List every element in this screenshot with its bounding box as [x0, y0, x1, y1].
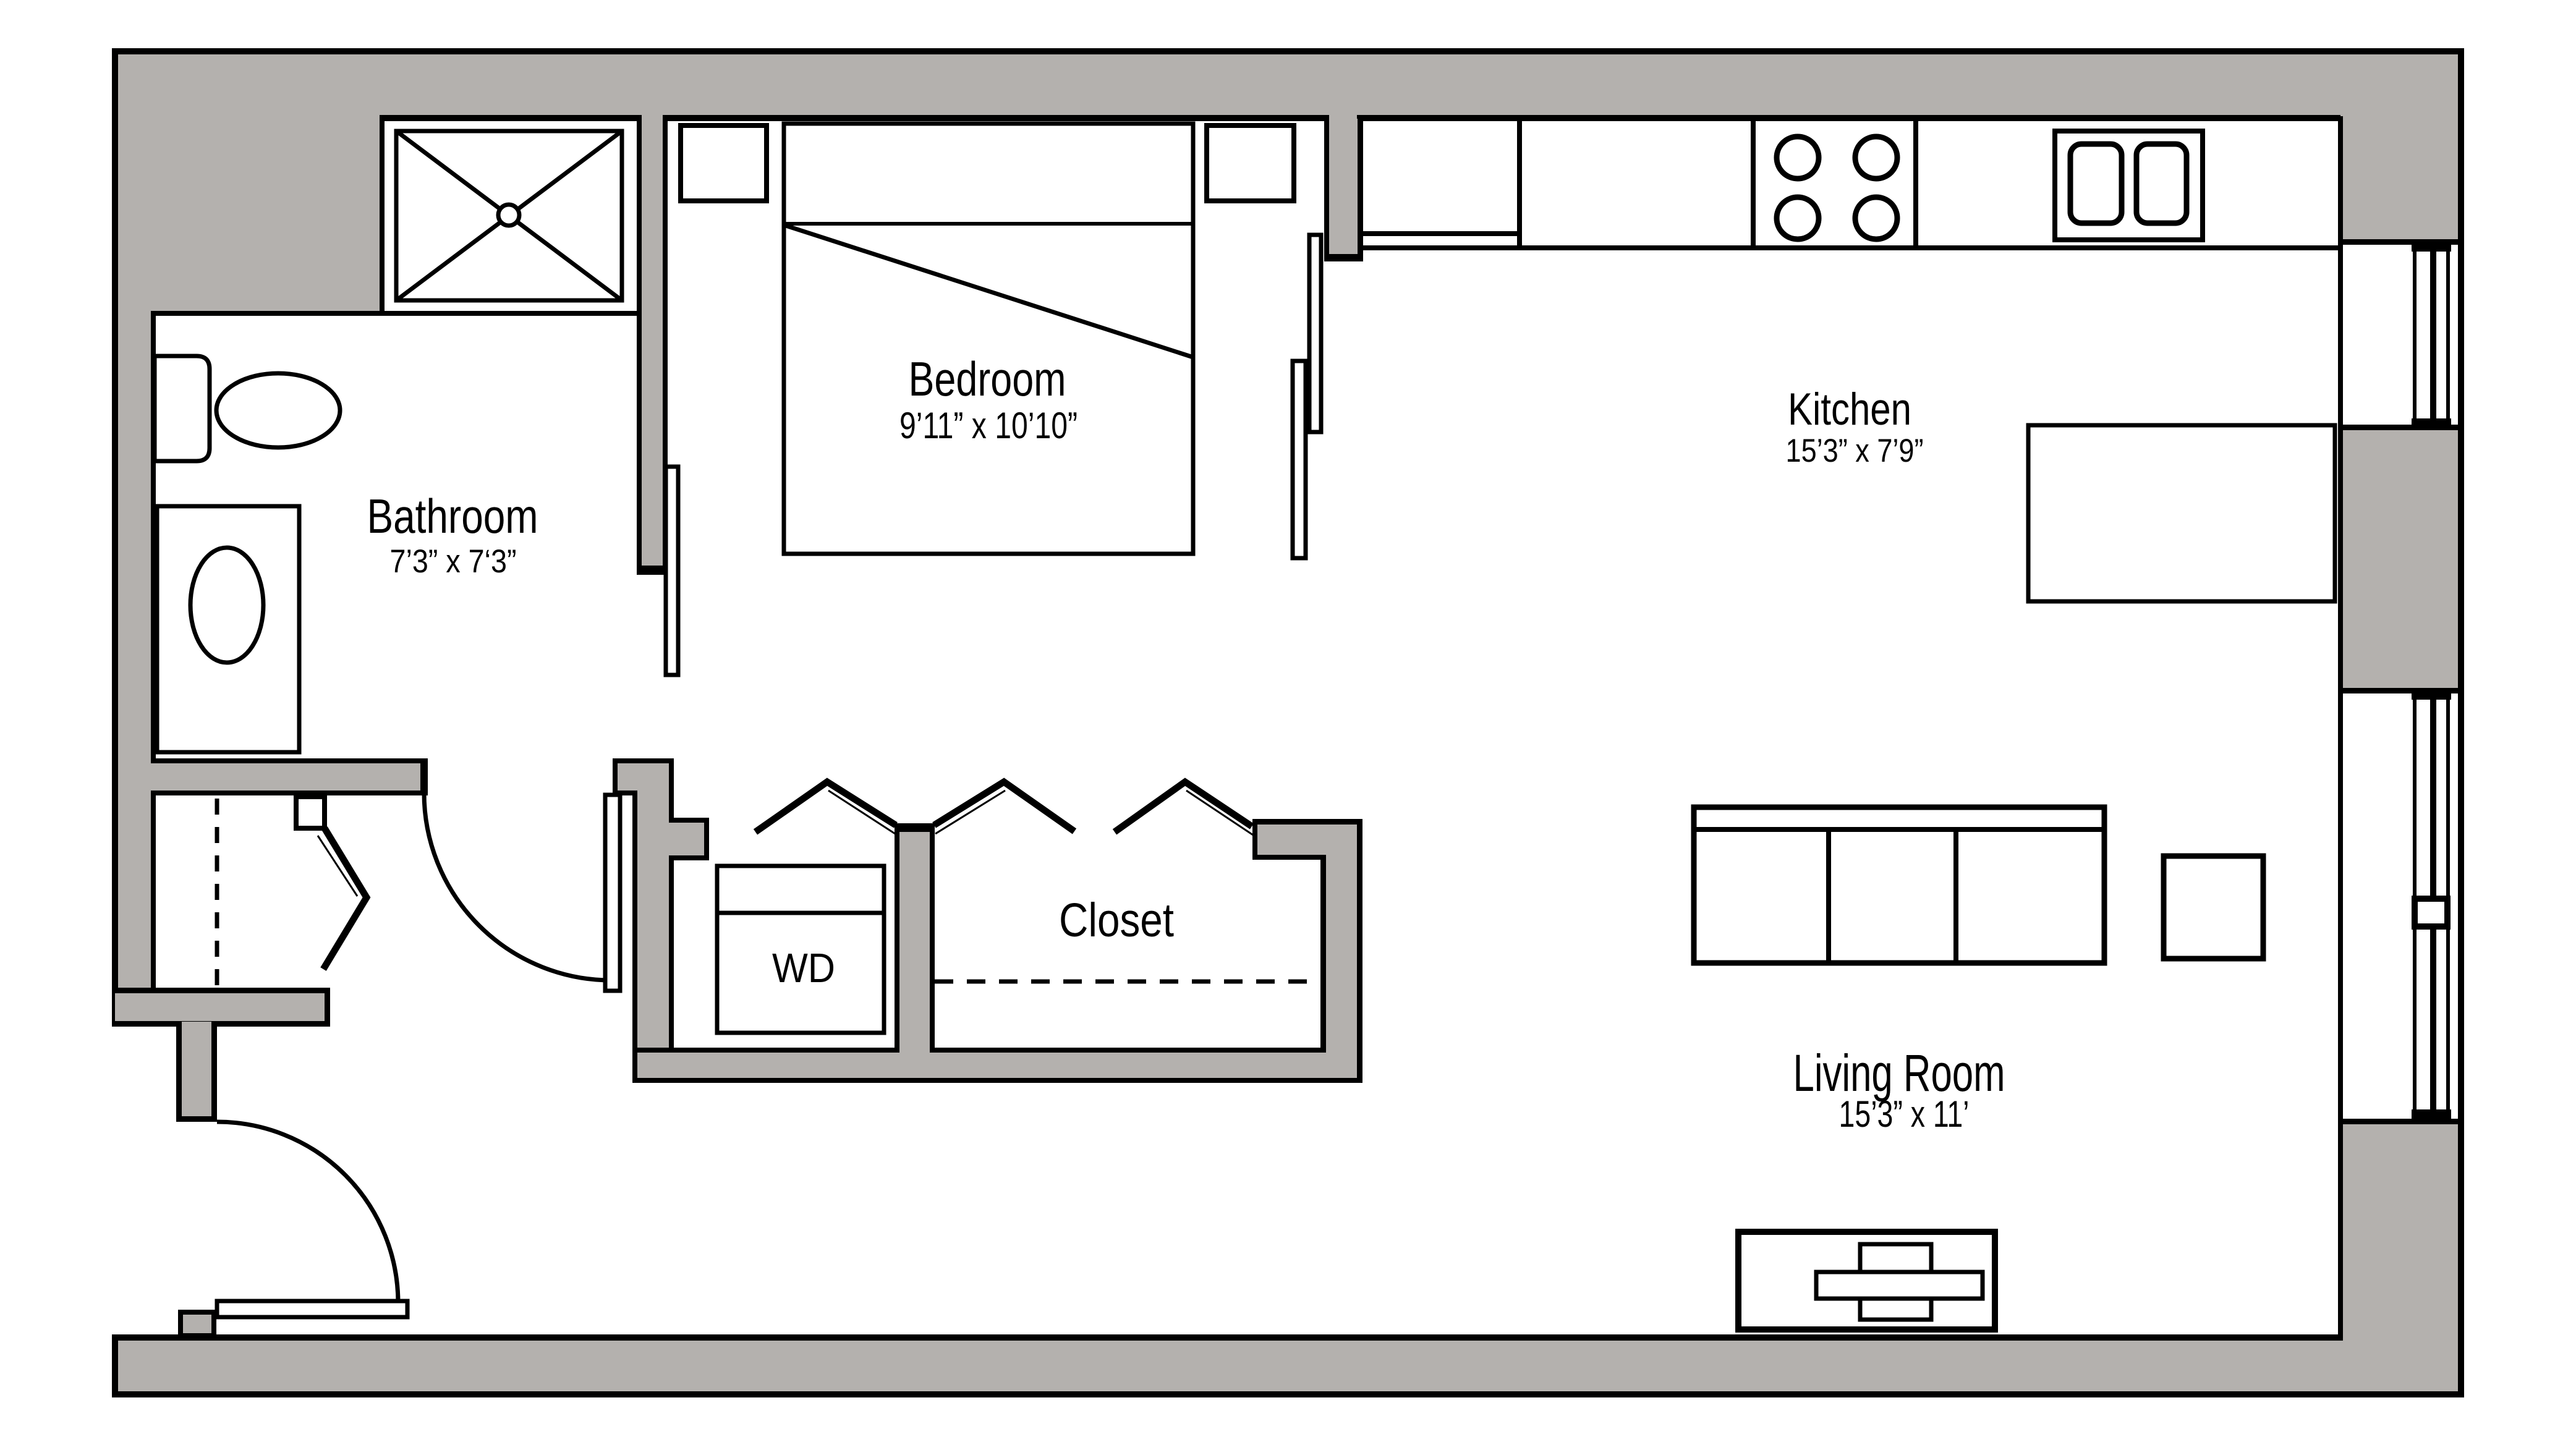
svg-text:WD: WD	[772, 945, 835, 991]
svg-text:Closet: Closet	[1059, 894, 1174, 947]
svg-text:Bedroom: Bedroom	[909, 352, 1066, 406]
svg-text:Kitchen: Kitchen	[1788, 384, 1911, 435]
svg-text:15’3” x 7’9”: 15’3” x 7’9”	[1786, 433, 1924, 469]
svg-text:15’3” x 11’: 15’3” x 11’	[1839, 1093, 1970, 1135]
svg-text:9’11” x 10’10”: 9’11” x 10’10”	[899, 405, 1078, 446]
svg-text:Bathroom: Bathroom	[367, 489, 538, 543]
svg-text:7’3” x 7‘3”: 7’3” x 7‘3”	[390, 543, 517, 580]
